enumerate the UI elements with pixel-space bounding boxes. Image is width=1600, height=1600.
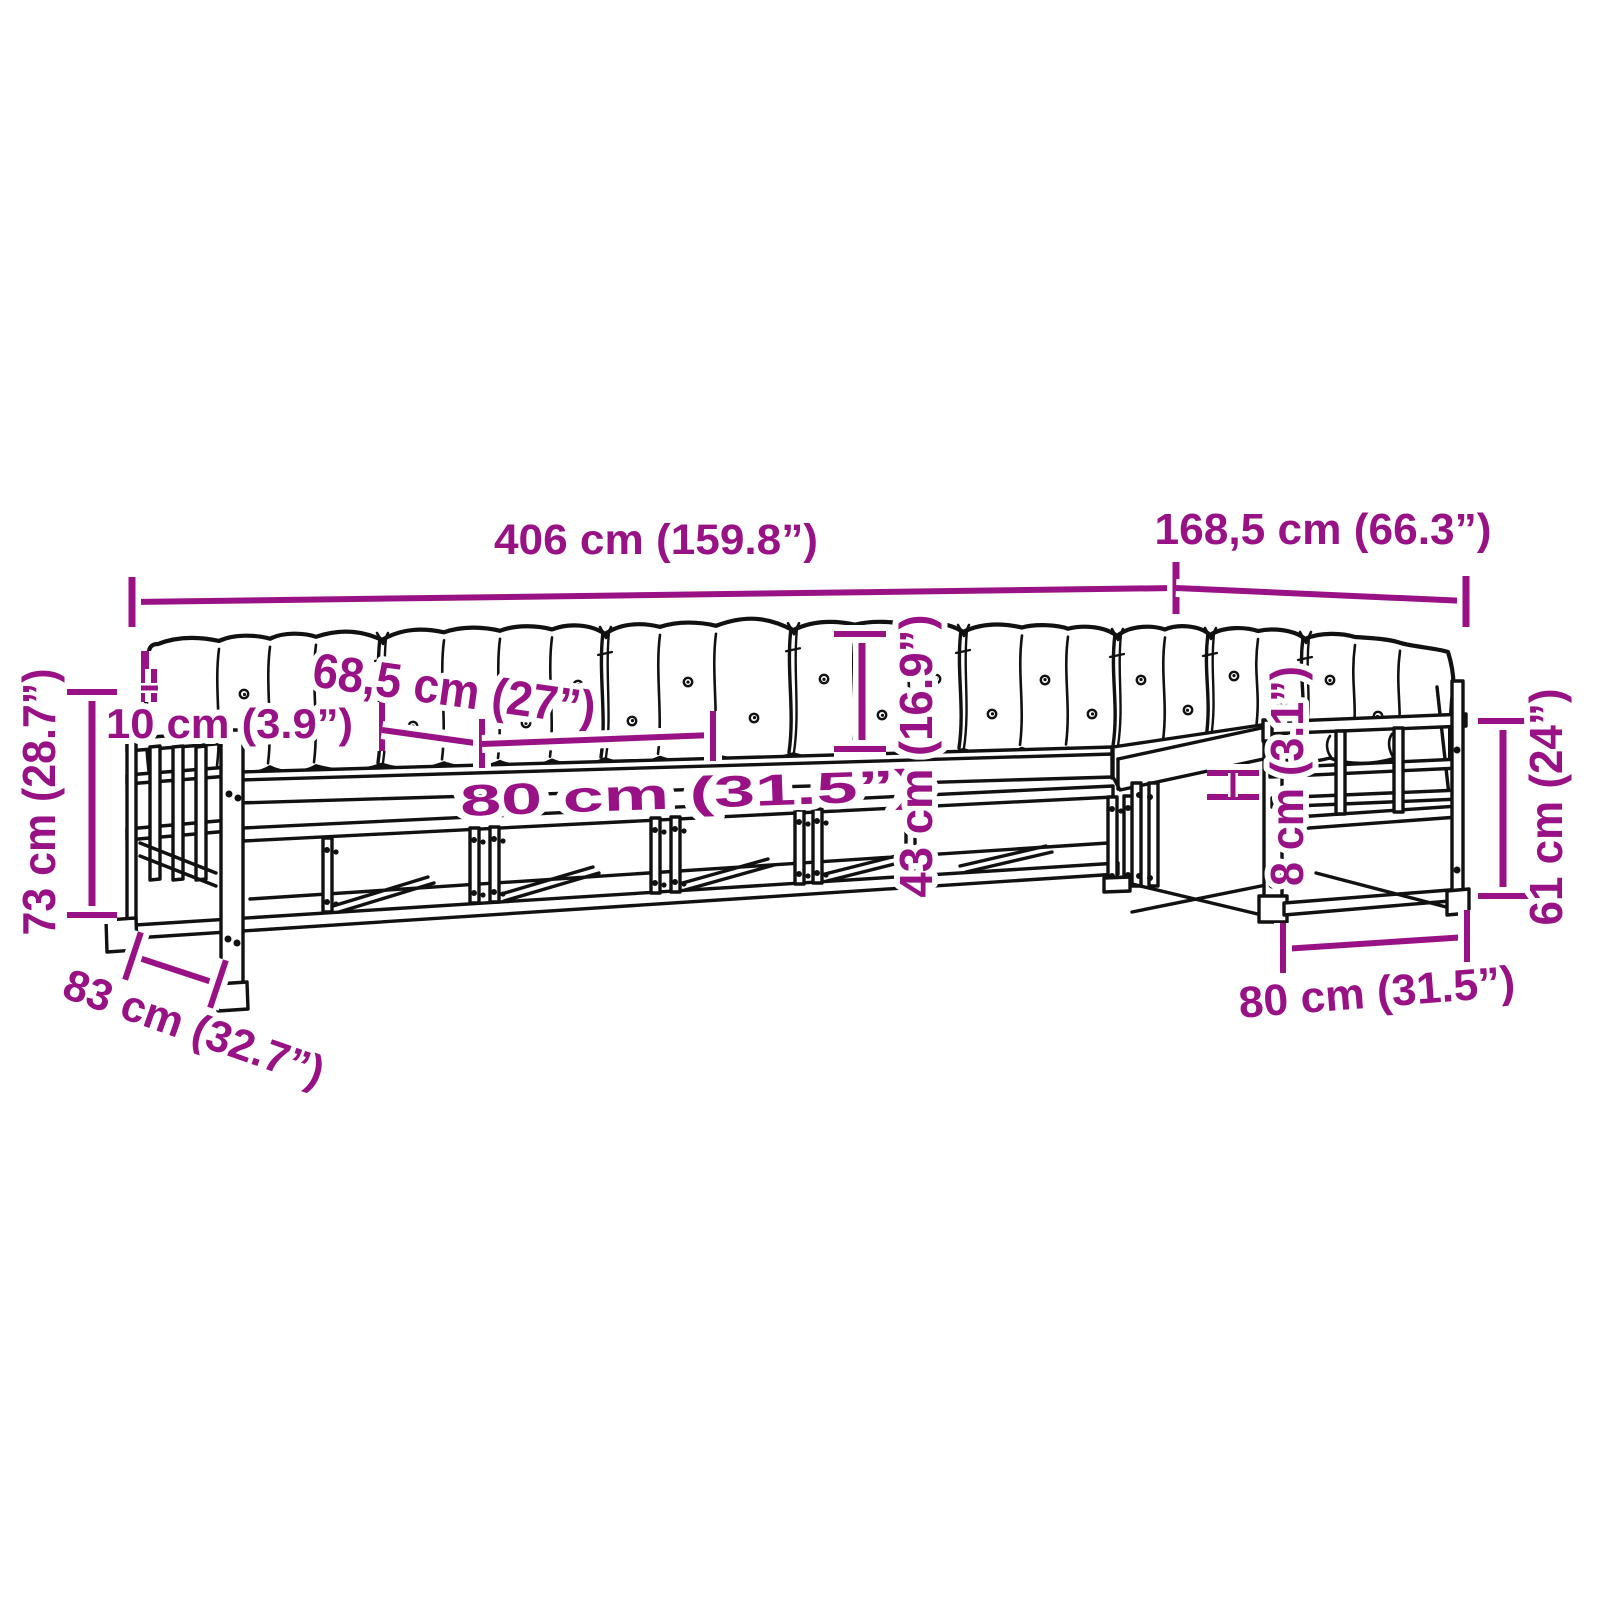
svg-text:8 cm (3.1”): 8 cm (3.1”) [1261,666,1313,886]
svg-text:406 cm (159.8”): 406 cm (159.8”) [494,516,818,564]
svg-text:168,5 cm (66.3”): 168,5 cm (66.3”) [1155,505,1492,554]
svg-text:43 cm (16.9”): 43 cm (16.9”) [890,615,942,898]
svg-text:61 cm (24”): 61 cm (24”) [1520,689,1572,926]
svg-text:10 cm (3.9”): 10 cm (3.9”) [106,700,353,747]
svg-text:73 cm (28.7”): 73 cm (28.7”) [13,669,65,936]
